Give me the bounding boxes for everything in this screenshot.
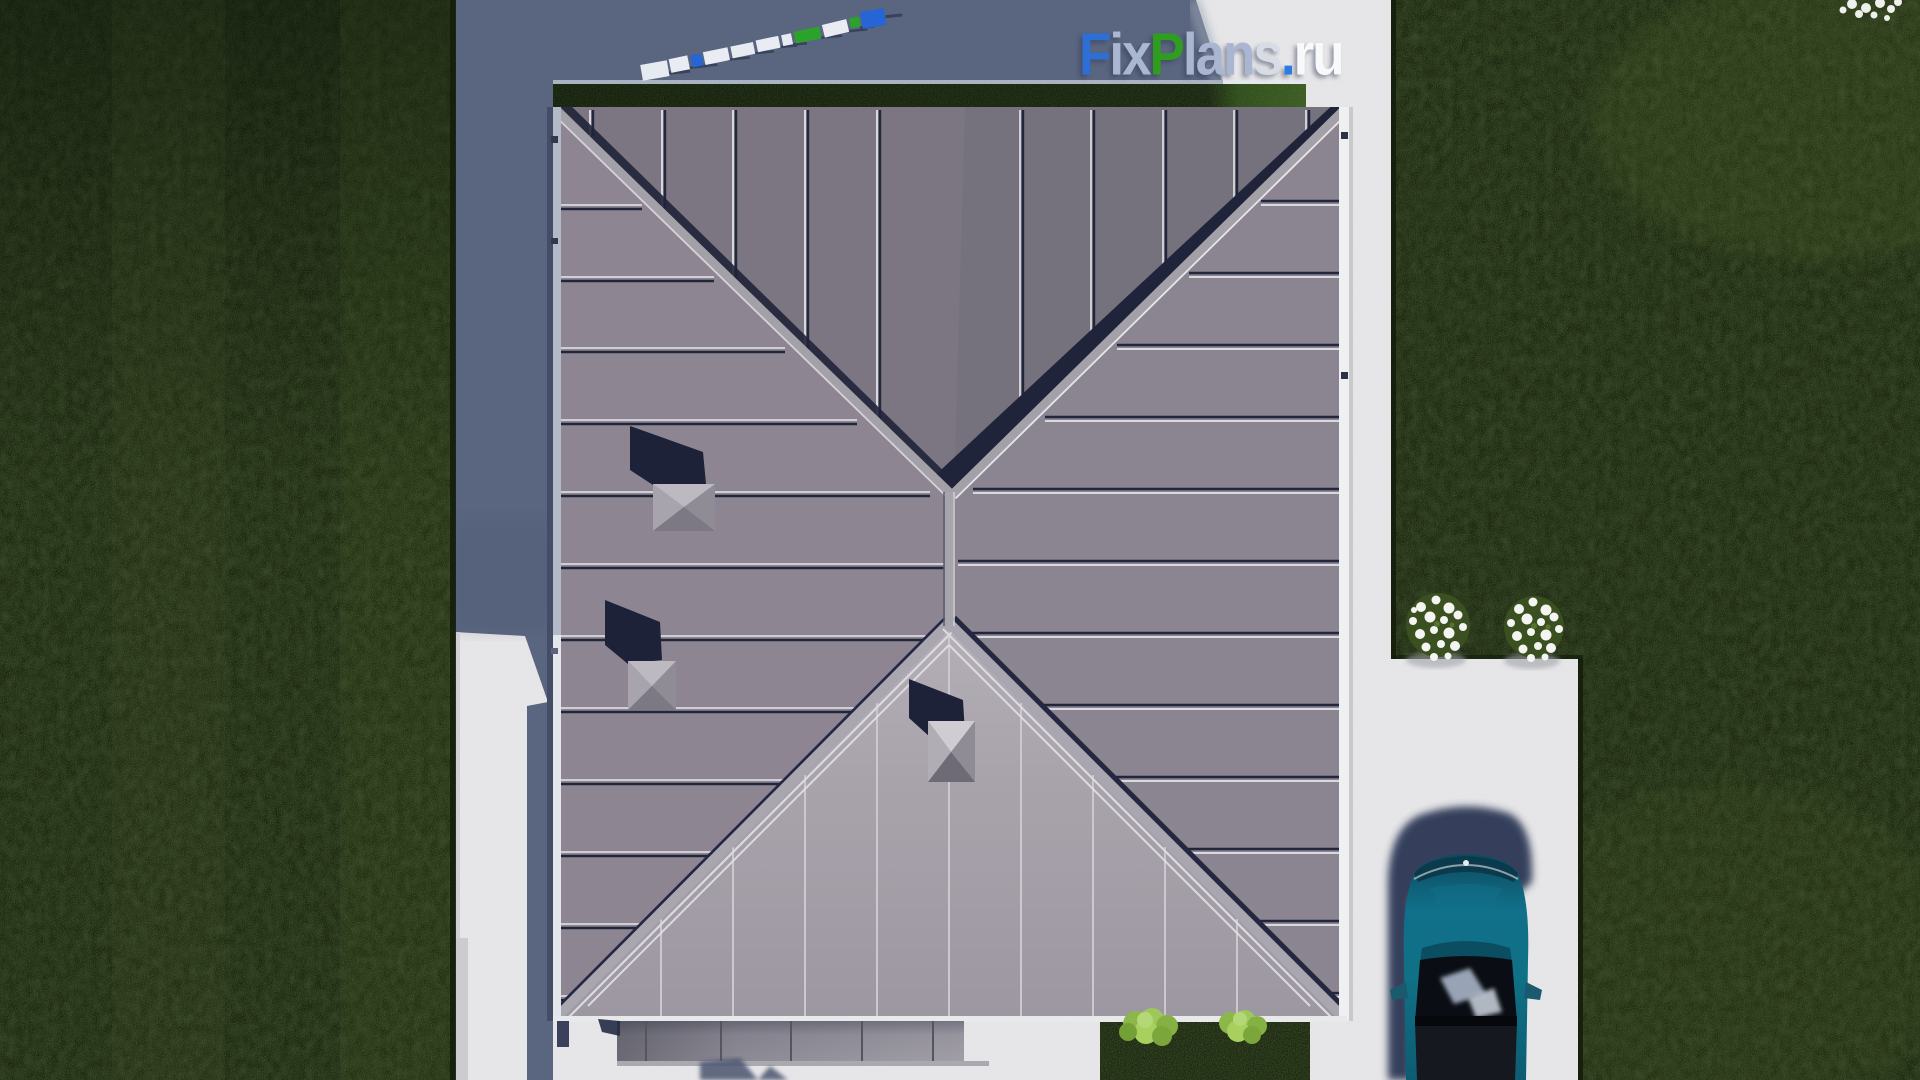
svg-text:FixPlans.ru: FixPlans.ru — [1079, 21, 1343, 87]
